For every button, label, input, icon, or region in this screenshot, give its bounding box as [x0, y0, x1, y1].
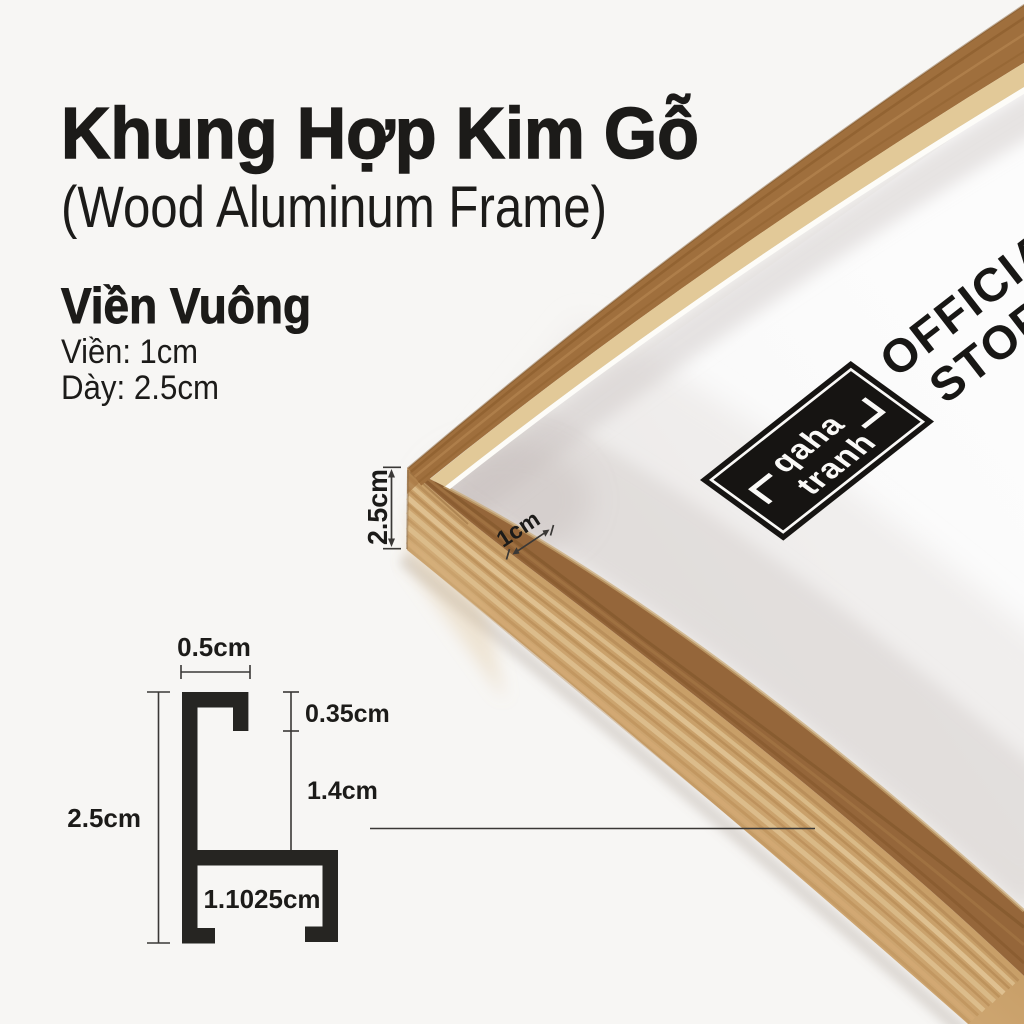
svg-text:Dày: 2.5cm: Dày: 2.5cm: [61, 369, 219, 407]
svg-text:(Wood Aluminum Frame): (Wood Aluminum Frame): [61, 175, 607, 240]
svg-text:Viền Vuông: Viền Vuông: [61, 278, 311, 334]
svg-text:Viền: 1cm: Viền: 1cm: [61, 333, 198, 371]
svg-text:2.5cm: 2.5cm: [362, 469, 393, 545]
svg-text:Khung Hợp Kim Gỗ: Khung Hợp Kim Gỗ: [61, 94, 699, 174]
svg-text:1.1025cm: 1.1025cm: [203, 884, 320, 914]
svg-text:2.5cm: 2.5cm: [67, 803, 141, 833]
svg-text:1.4cm: 1.4cm: [307, 777, 378, 805]
svg-text:0.35cm: 0.35cm: [305, 700, 390, 728]
svg-text:0.5cm: 0.5cm: [177, 632, 251, 662]
